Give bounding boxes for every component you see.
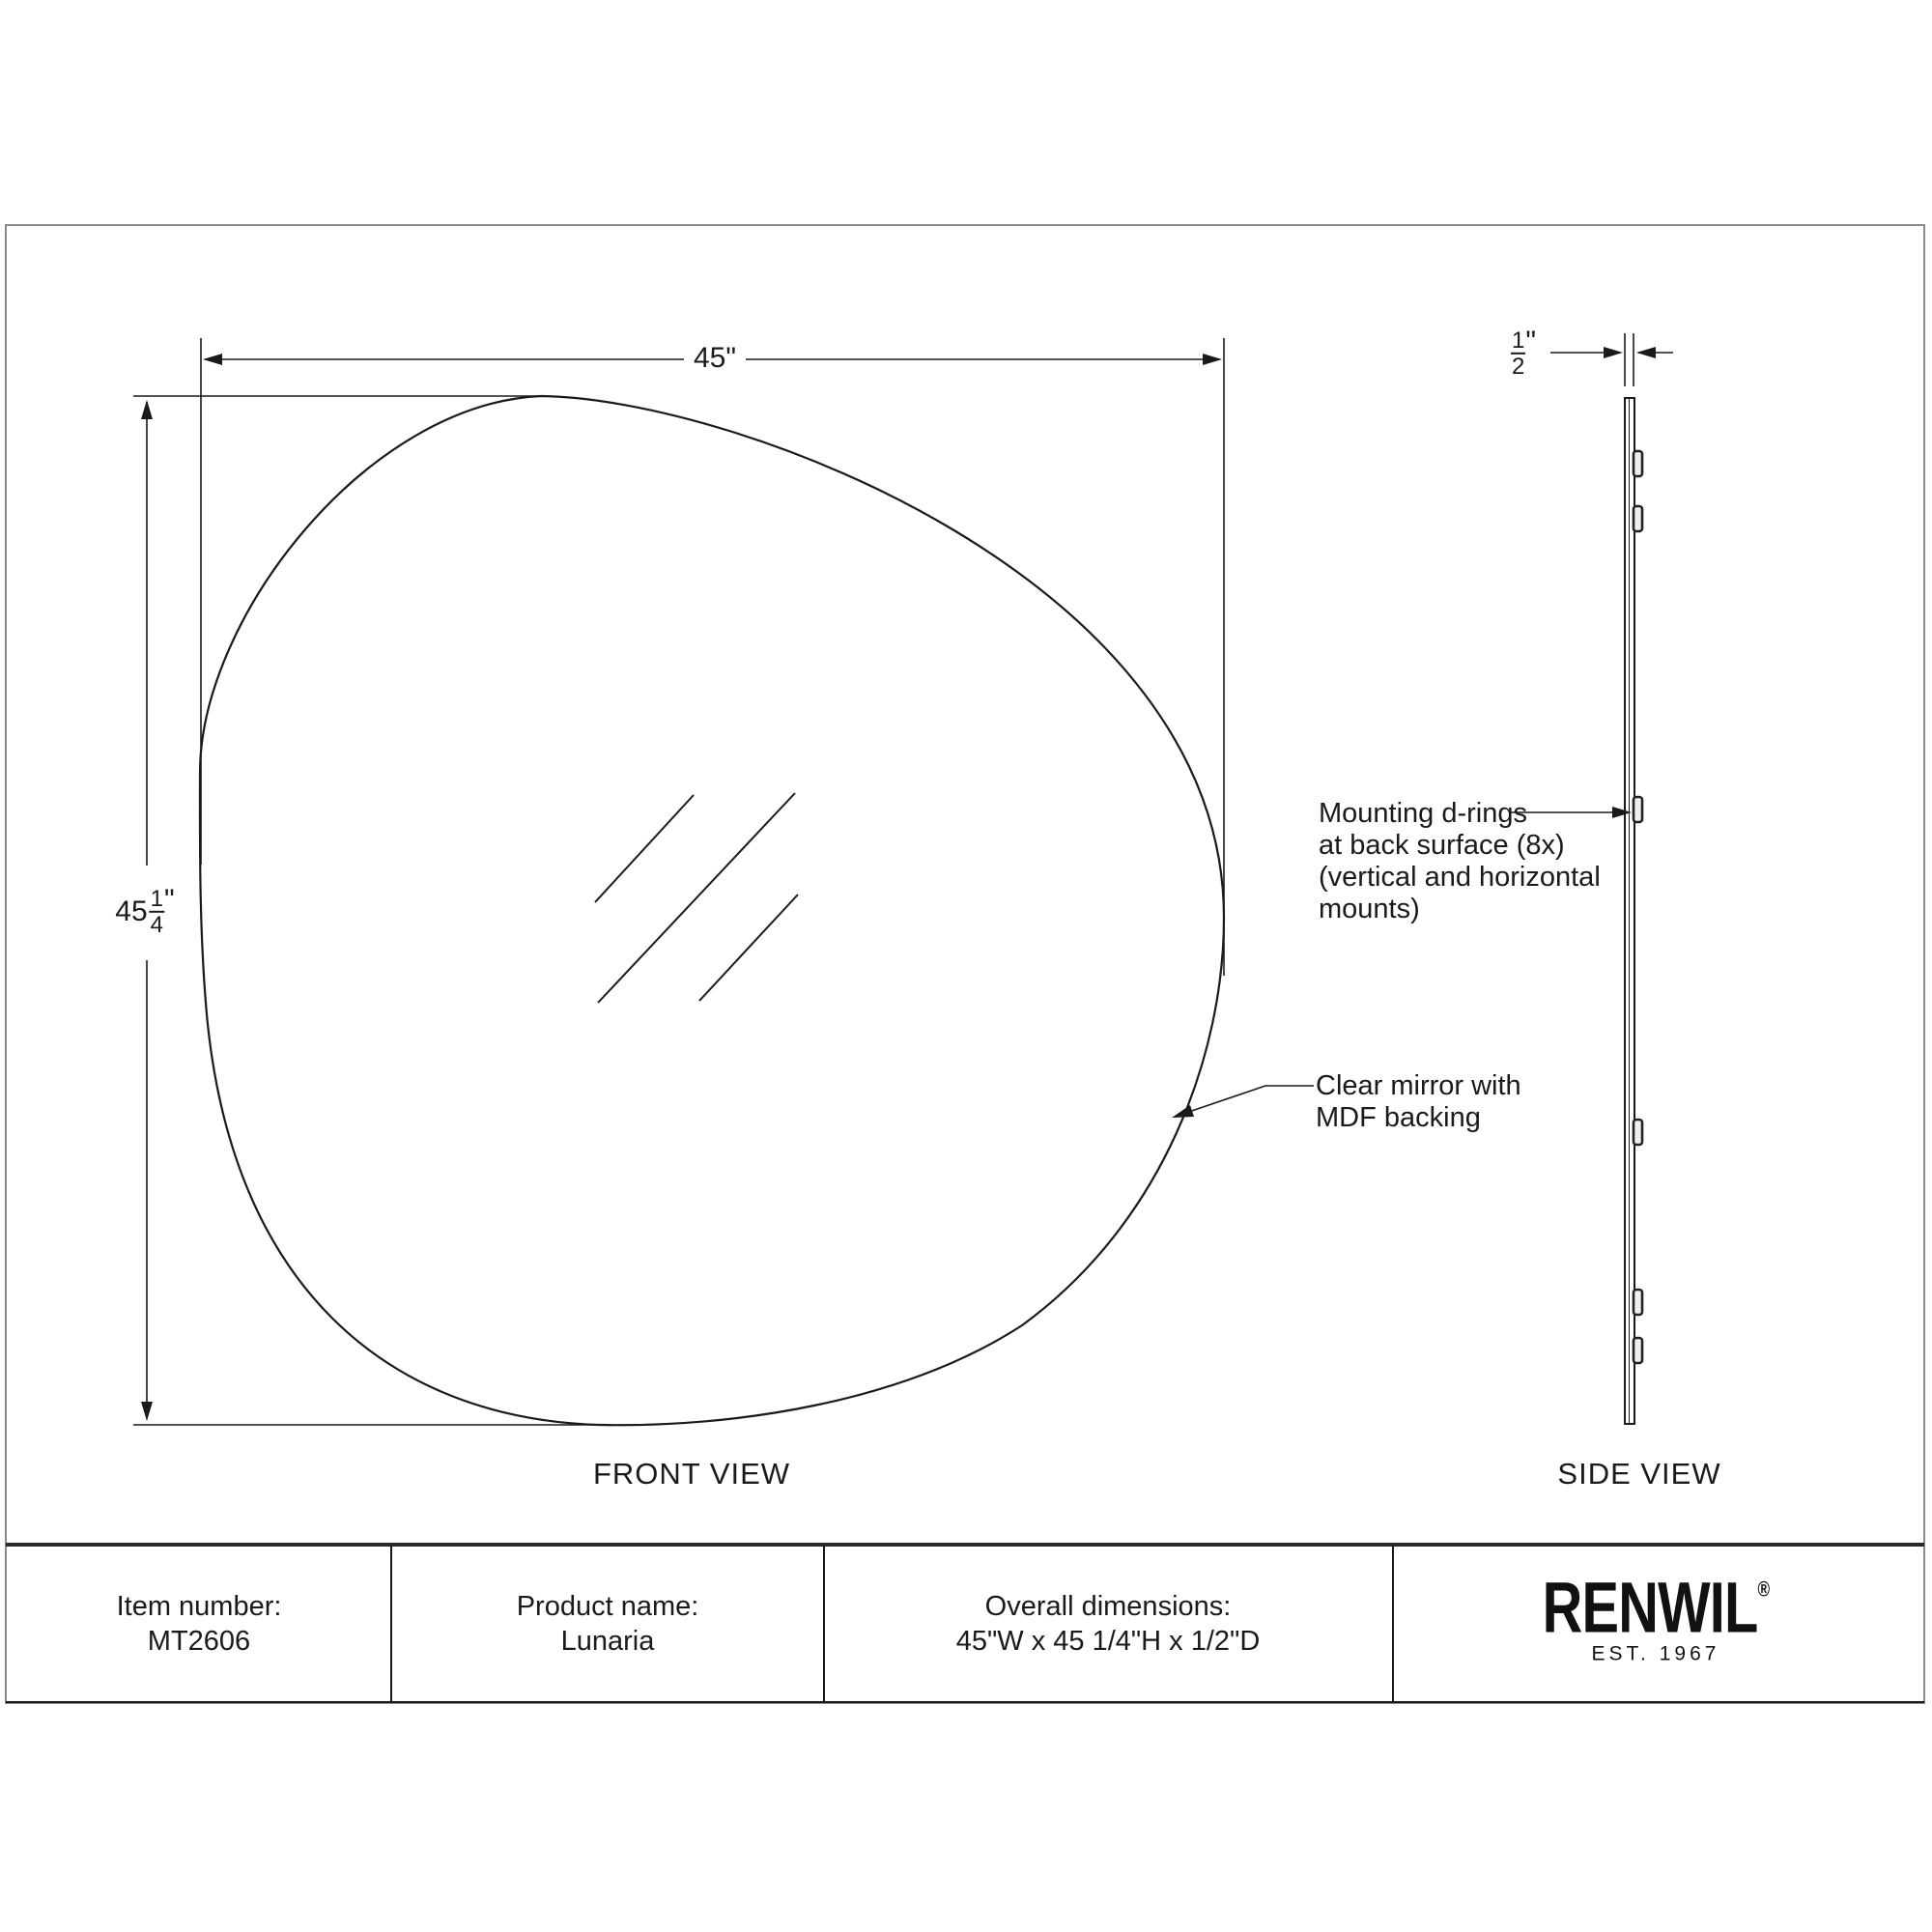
item-number-value: MT2606	[117, 1624, 282, 1659]
overall-dimensions-label: Overall dimensions:	[956, 1589, 1261, 1624]
height-unit: "	[164, 887, 175, 913]
depth-arrow-right	[1636, 347, 1656, 358]
height-dimension-lines	[133, 396, 601, 1425]
drings-annotation-line1: Mounting d-rings	[1319, 798, 1601, 830]
spec-sheet: 45" 45 1 4 " 1 2 " Mounting d-rings at b…	[0, 0, 1932, 1932]
depth-fraction-denominator: 2	[1512, 355, 1524, 379]
height-fraction: 1 4	[150, 887, 164, 937]
front-view-label: FRONT VIEW	[593, 1457, 790, 1492]
mirror-hatch-lines	[595, 793, 798, 1003]
item-number-cell: Item number: MT2606	[117, 1589, 282, 1659]
mirror-annotation: Clear mirror with MDF backing	[1316, 1070, 1521, 1134]
product-name-value: Lunaria	[517, 1624, 699, 1659]
product-name-cell: Product name: Lunaria	[517, 1589, 699, 1659]
depth-fraction: 1 2	[1511, 328, 1525, 379]
height-fraction-denominator: 4	[151, 913, 163, 937]
overall-dimensions-value: 45"W x 45 1/4"H x 1/2"D	[956, 1624, 1261, 1659]
drings-annotation-line2: at back surface (8x)	[1319, 830, 1601, 862]
mirror-leader-arrow	[1172, 1105, 1194, 1118]
width-value: 45"	[694, 342, 736, 375]
depth-dimension-label: 1 2 "	[1508, 328, 1539, 379]
drings-annotation-line3: (vertical and horizontal	[1319, 862, 1601, 894]
width-arrow-right	[1203, 354, 1222, 365]
product-name-label: Product name:	[517, 1589, 699, 1624]
drings-annotation-line4: mounts)	[1319, 894, 1601, 925]
height-arrow-bottom	[141, 1402, 153, 1421]
width-arrow-left	[203, 354, 222, 365]
width-dimension-label: 45"	[691, 342, 739, 375]
height-whole: 45	[115, 895, 147, 928]
depth-arrow-left	[1604, 347, 1623, 358]
overall-dimensions-cell: Overall dimensions: 45"W x 45 1/4"H x 1/…	[956, 1589, 1261, 1659]
brand-logo: RENWIL®	[1510, 1580, 1801, 1637]
side-view-label: SIDE VIEW	[1557, 1457, 1720, 1492]
mirror-outline	[200, 396, 1224, 1425]
depth-unit: "	[1525, 328, 1536, 355]
mirror-annotation-line1: Clear mirror with	[1316, 1070, 1521, 1102]
mirror-annotation-line2: MDF backing	[1316, 1102, 1521, 1134]
height-fraction-numerator: 1	[150, 887, 164, 913]
depth-fraction-numerator: 1	[1511, 328, 1525, 355]
mirror-leader-line	[1175, 1086, 1314, 1117]
item-number-label: Item number:	[117, 1589, 282, 1624]
registered-trademark-icon: ®	[1758, 1577, 1770, 1602]
height-arrow-top	[141, 400, 153, 419]
brand-logo-cell: RENWIL® EST. 1967	[1510, 1580, 1801, 1666]
depth-dimension-lines	[1550, 333, 1673, 386]
brand-logo-text: RENWIL®	[1543, 1580, 1770, 1636]
height-dimension-label: 45 1 4 "	[112, 887, 177, 937]
drings-annotation: Mounting d-rings at back surface (8x) (v…	[1319, 798, 1601, 925]
